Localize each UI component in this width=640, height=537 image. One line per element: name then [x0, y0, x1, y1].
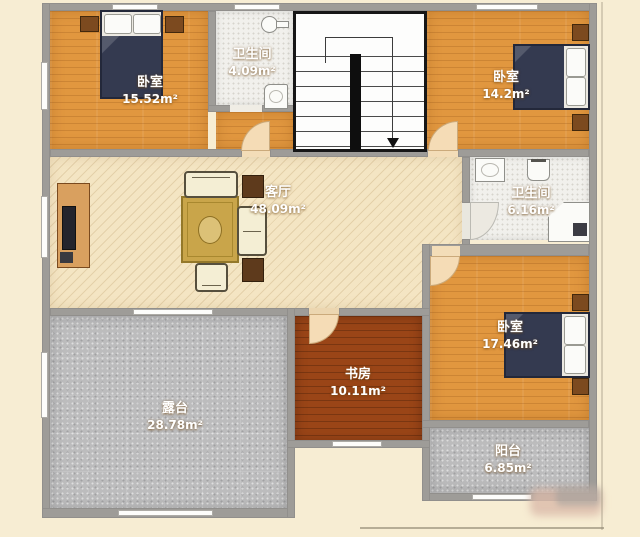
- sofa: [184, 171, 238, 198]
- room-label-bathroom-top: 卫生间 4.09m²: [228, 47, 275, 79]
- room-name: 卧室: [482, 320, 538, 337]
- room-area: 28.78m²: [147, 418, 203, 434]
- doorway-bathroom-top: [230, 105, 262, 112]
- nightstand: [572, 114, 589, 131]
- room-area: 15.52m²: [122, 92, 178, 108]
- armchair-back-line: [202, 285, 221, 286]
- wall-top-row-a: [50, 149, 242, 157]
- room-area: 48.09m²: [250, 202, 306, 218]
- wall-top-row-c: [458, 149, 589, 157]
- pillow: [566, 77, 586, 106]
- nightstand: [572, 294, 589, 311]
- nightstand: [80, 16, 99, 32]
- photo-fold-line: [601, 2, 603, 530]
- toilet: [527, 159, 550, 181]
- media-box: [60, 252, 73, 263]
- wall-bath-top-bottom-a: [208, 105, 232, 112]
- staircase-guide: [325, 37, 326, 63]
- wall-bed1-bath-divider: [208, 11, 216, 112]
- rug-medallion: [198, 216, 222, 244]
- photo-edge-line: [360, 527, 604, 529]
- window: [332, 441, 382, 447]
- room-label-study: 书房 10.11m²: [330, 367, 386, 399]
- room-area: 6.16m²: [507, 203, 554, 219]
- pillow: [566, 48, 586, 77]
- sofa-back-line: [192, 177, 230, 178]
- window: [234, 4, 280, 10]
- room-name: 卫生间: [507, 186, 554, 203]
- room-name: 客厅: [250, 185, 306, 202]
- window: [41, 62, 48, 110]
- side-table: [242, 258, 264, 282]
- pillow: [104, 14, 132, 34]
- room-area: 4.09m²: [228, 64, 275, 80]
- room-name: 卧室: [122, 75, 178, 92]
- wall-bath-right-left-a: [462, 157, 470, 203]
- room-name: 卫生间: [228, 47, 275, 64]
- pillow: [133, 14, 161, 34]
- rug: [181, 196, 239, 263]
- toilet-tank: [531, 159, 546, 162]
- wall-bedroom3-bottom: [422, 420, 589, 428]
- wall-terrace-right: [287, 308, 295, 518]
- room-name: 阳台: [484, 444, 531, 461]
- down-arrow-icon: [387, 138, 399, 148]
- pillow: [564, 316, 586, 345]
- room-name: 卧室: [482, 70, 529, 87]
- window: [41, 196, 48, 258]
- staircase-guide: [325, 37, 393, 38]
- room-name: 露台: [147, 401, 203, 418]
- room-label-bedroom-topright: 卧室 14.2m²: [482, 70, 529, 102]
- room-label-bedroom-bottomright: 卧室 17.46m²: [482, 320, 538, 352]
- sink: [475, 158, 505, 182]
- shower-drain: [573, 223, 587, 236]
- doorway-bedroom-bottomright: [432, 246, 460, 256]
- toilet-bowl: [269, 90, 283, 103]
- room-area: 10.11m²: [330, 384, 386, 400]
- window: [118, 510, 213, 516]
- armchair: [195, 263, 228, 292]
- wall-corridor-right: [422, 244, 430, 501]
- room-label-terrace: 露台 28.78m²: [147, 401, 203, 433]
- doorway-bathroom-right: [462, 203, 470, 239]
- room-label-bathroom-right: 卫生间 6.16m²: [507, 186, 554, 218]
- room-label-bedroom-topleft: 卧室 15.52m²: [122, 75, 178, 107]
- window: [476, 4, 538, 10]
- sink-basin: [481, 163, 499, 177]
- nightstand: [572, 378, 589, 395]
- watermark-blur: [556, 486, 600, 506]
- room-area: 6.85m²: [484, 461, 531, 477]
- wall-living-bottom-b: [339, 308, 430, 316]
- toilet: [264, 84, 288, 109]
- room-area: 17.46m²: [482, 337, 538, 353]
- window: [133, 309, 213, 315]
- nightstand: [572, 24, 589, 41]
- wall-outer-right: [589, 3, 597, 501]
- staircase-divider: [350, 54, 361, 150]
- room-area: 14.2m²: [482, 87, 529, 103]
- room-label-living: 客厅 48.09m²: [250, 185, 306, 217]
- tv: [62, 206, 76, 250]
- staircase-guide: [392, 37, 393, 138]
- pillow: [564, 345, 586, 374]
- nightstand: [165, 16, 184, 33]
- loveseat-seam: [243, 231, 261, 232]
- room-name: 书房: [330, 367, 386, 384]
- window: [472, 494, 532, 500]
- window: [41, 352, 48, 418]
- room-label-balcony: 阳台 6.85m²: [484, 444, 531, 476]
- faucet-handle: [276, 21, 289, 28]
- floor-plan: 卧室 15.52m² 卫生间 4.09m² 卧室 14.2m² 客厅 48.09…: [0, 0, 640, 537]
